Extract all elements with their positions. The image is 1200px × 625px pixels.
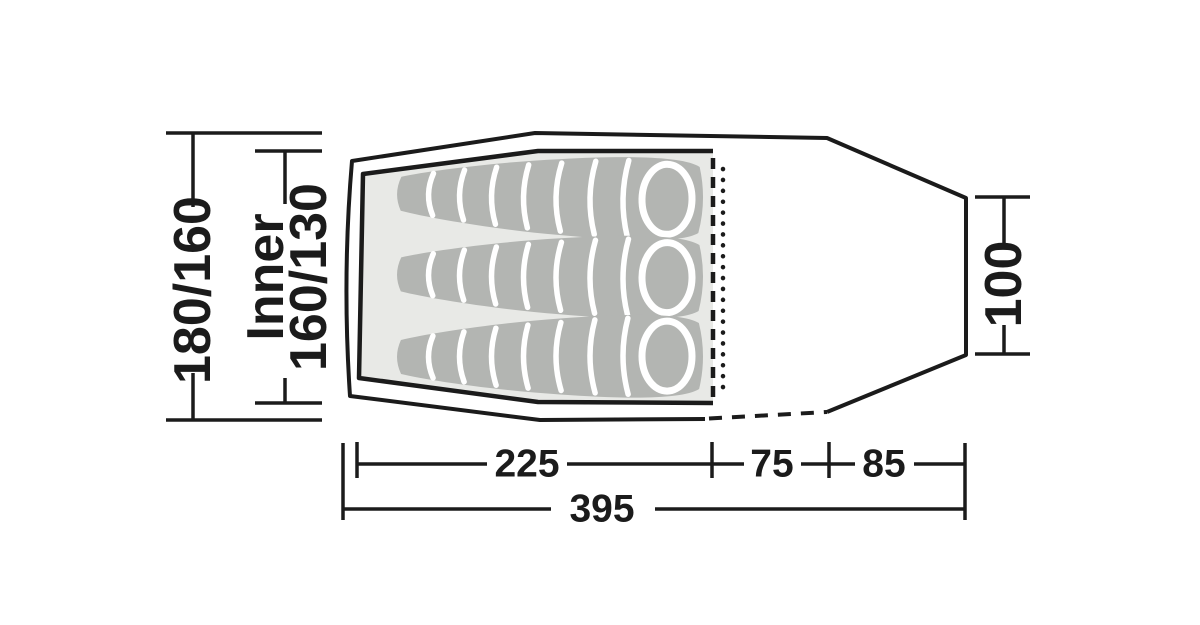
total-length-label: 395 bbox=[569, 488, 634, 531]
inner-length-label: 225 bbox=[494, 443, 559, 486]
inner-width-dimension: Inner 160/130 bbox=[237, 151, 338, 403]
inner-width-label: 160/130 bbox=[280, 183, 338, 371]
outer-width-label: 180/160 bbox=[164, 196, 222, 384]
door-height-label: 100 bbox=[975, 241, 1033, 328]
mid-length-label: 75 bbox=[750, 443, 793, 486]
diagram-canvas: 180/160 Inner 160/130 100 225 75 85 3 bbox=[0, 0, 1200, 625]
segment-length-dimension: 225 75 85 bbox=[357, 442, 965, 486]
door-height-dimension: 100 bbox=[975, 197, 1033, 354]
tent-dimension-diagram: 180/160 Inner 160/130 100 225 75 85 3 bbox=[0, 0, 1200, 625]
sleeping-bags-group bbox=[396, 152, 704, 398]
front-length-label: 85 bbox=[862, 443, 905, 486]
